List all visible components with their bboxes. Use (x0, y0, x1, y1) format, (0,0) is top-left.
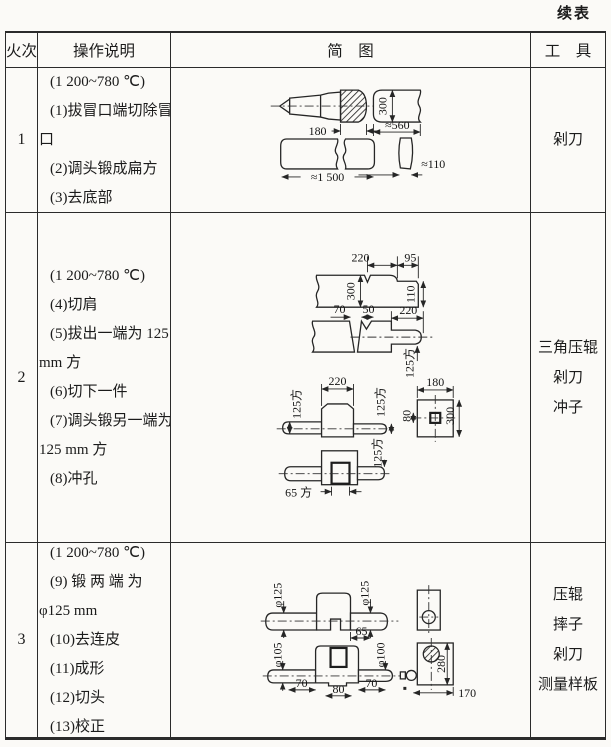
dim-label: 80 (333, 682, 345, 696)
dim-label: 125方 (289, 389, 304, 419)
forging-sketch-heat1: 180 300 ≈560 ≈1 500 ≈110 (171, 68, 530, 213)
heat-number-1: 1 (6, 68, 38, 213)
heat-number-2: 2 (6, 213, 38, 543)
dim-label: 180 (309, 124, 327, 138)
header-operations: 操作说明 (38, 33, 171, 68)
operations-row2: (1 200~780 ℃) (4)切肩 (5)拔出一端为 125 mm 方 (6… (38, 213, 171, 543)
tool-item: 压辊 (553, 580, 583, 610)
op-line: φ125 mm (39, 597, 170, 626)
dim-label: 280 (434, 655, 448, 673)
dim-label: 125方 (401, 348, 416, 378)
sketch-row1: 180 300 ≈560 ≈1 500 ≈110 (171, 68, 531, 213)
op-line: (10)去连皮 (39, 626, 170, 655)
op-line: (1 200~780 ℃) (39, 543, 170, 568)
op-line: (3)去底部 (39, 184, 170, 213)
tool-item: 剁刀 (553, 363, 583, 393)
dim-label: 220 (399, 303, 417, 317)
tools-row2: 三角压辊 剁刀 冲子 (531, 213, 605, 543)
dim-label: 70 (334, 302, 346, 316)
dim-label: φ100 (373, 643, 387, 668)
op-line: (8)冲孔 (39, 465, 170, 494)
tool-item: 测量样板 (538, 670, 598, 700)
operations-row3: (1 200~780 ℃) (9) 锻 两 端 为 φ125 mm (10)去连… (38, 543, 171, 737)
op-line: (6)切下一件 (39, 378, 170, 407)
header-heat: 火次 (6, 33, 38, 68)
tools-row1: 剁刀 (531, 68, 605, 213)
dim-label: 70 (365, 676, 377, 690)
dim-label: 65 方 (285, 485, 312, 500)
tool-item: 剁刀 (553, 640, 583, 670)
process-table: 火次 操作说明 简 图 工 具 1 (1 200~780 ℃) (1)拔冒口端切… (5, 31, 606, 740)
dim-label: 180 (426, 375, 444, 389)
forging-sketch-heat2: 220 95 300 110 70 50 220 125方 (171, 213, 530, 543)
dim-label: φ125 (357, 581, 371, 606)
dim-label: 125方 (369, 438, 384, 468)
dim-label: 50 (362, 302, 374, 316)
dim-label: 110 (403, 285, 417, 303)
op-line: (1 200~780 ℃) (39, 68, 170, 97)
dim-label: 80 (399, 410, 413, 422)
dim-label: ≈560 (385, 118, 410, 132)
dim-label: ≈110 (421, 157, 445, 171)
op-line: (2)调头锻成扁方 (39, 155, 170, 184)
dim-label: ≈1 500 (311, 170, 344, 184)
op-line: (12)切头 (39, 684, 170, 713)
dim-label: 220 (352, 250, 370, 264)
op-line: mm 方 (39, 349, 170, 378)
dim-label: 300 (343, 282, 357, 300)
op-line: (7)调头锻另一端为 (39, 407, 170, 436)
dim-label: 65 (355, 624, 367, 638)
op-line: 125 mm 方 (39, 436, 170, 465)
op-line: (5)拔出一端为 125 (39, 320, 170, 349)
op-line: (1)拔冒口端切除冒 (39, 97, 170, 126)
op-line: (1 200~780 ℃) (39, 262, 170, 291)
dim-label: φ105 (271, 643, 285, 668)
dim-label: 300 (375, 97, 389, 115)
dim-label: 95 (404, 250, 416, 264)
op-line: (13)校正 (39, 713, 170, 738)
dim-label: 220 (329, 374, 347, 388)
op-line: (4)切肩 (39, 291, 170, 320)
tool-item: 剁刀 (553, 125, 583, 155)
tool-item: 冲子 (553, 393, 583, 423)
op-line: (11)成形 (39, 655, 170, 684)
sketch-row2: 220 95 300 110 70 50 220 125方 (171, 213, 531, 543)
operations-row1: (1 200~780 ℃) (1)拔冒口端切除冒 口 (2)调头锻成扁方 (3)… (38, 68, 171, 213)
op-line: 口 (39, 126, 170, 155)
dim-label: 300 (443, 407, 457, 425)
header-sketch: 简 图 (171, 33, 531, 68)
header-tools: 工 具 (531, 33, 605, 68)
dim-label: 70 (296, 676, 308, 690)
forging-sketch-heat3: φ125 φ125 65 φ105 φ100 70 (171, 543, 530, 737)
tool-item: 三角压辊 (538, 333, 598, 363)
sketch-row3: φ125 φ125 65 φ105 φ100 70 (171, 543, 531, 737)
continued-table-label: 续表 (557, 2, 591, 23)
tools-row3: 压辊 摔子 剁刀 测量样板 (531, 543, 605, 737)
heat-number-3: 3 (6, 543, 38, 737)
dim-label: 170 (458, 686, 476, 700)
tool-item: 摔子 (553, 610, 583, 640)
dim-label: φ125 (271, 583, 285, 608)
op-line: (9) 锻 两 端 为 (39, 568, 170, 597)
dim-label: 125方 (372, 387, 387, 417)
